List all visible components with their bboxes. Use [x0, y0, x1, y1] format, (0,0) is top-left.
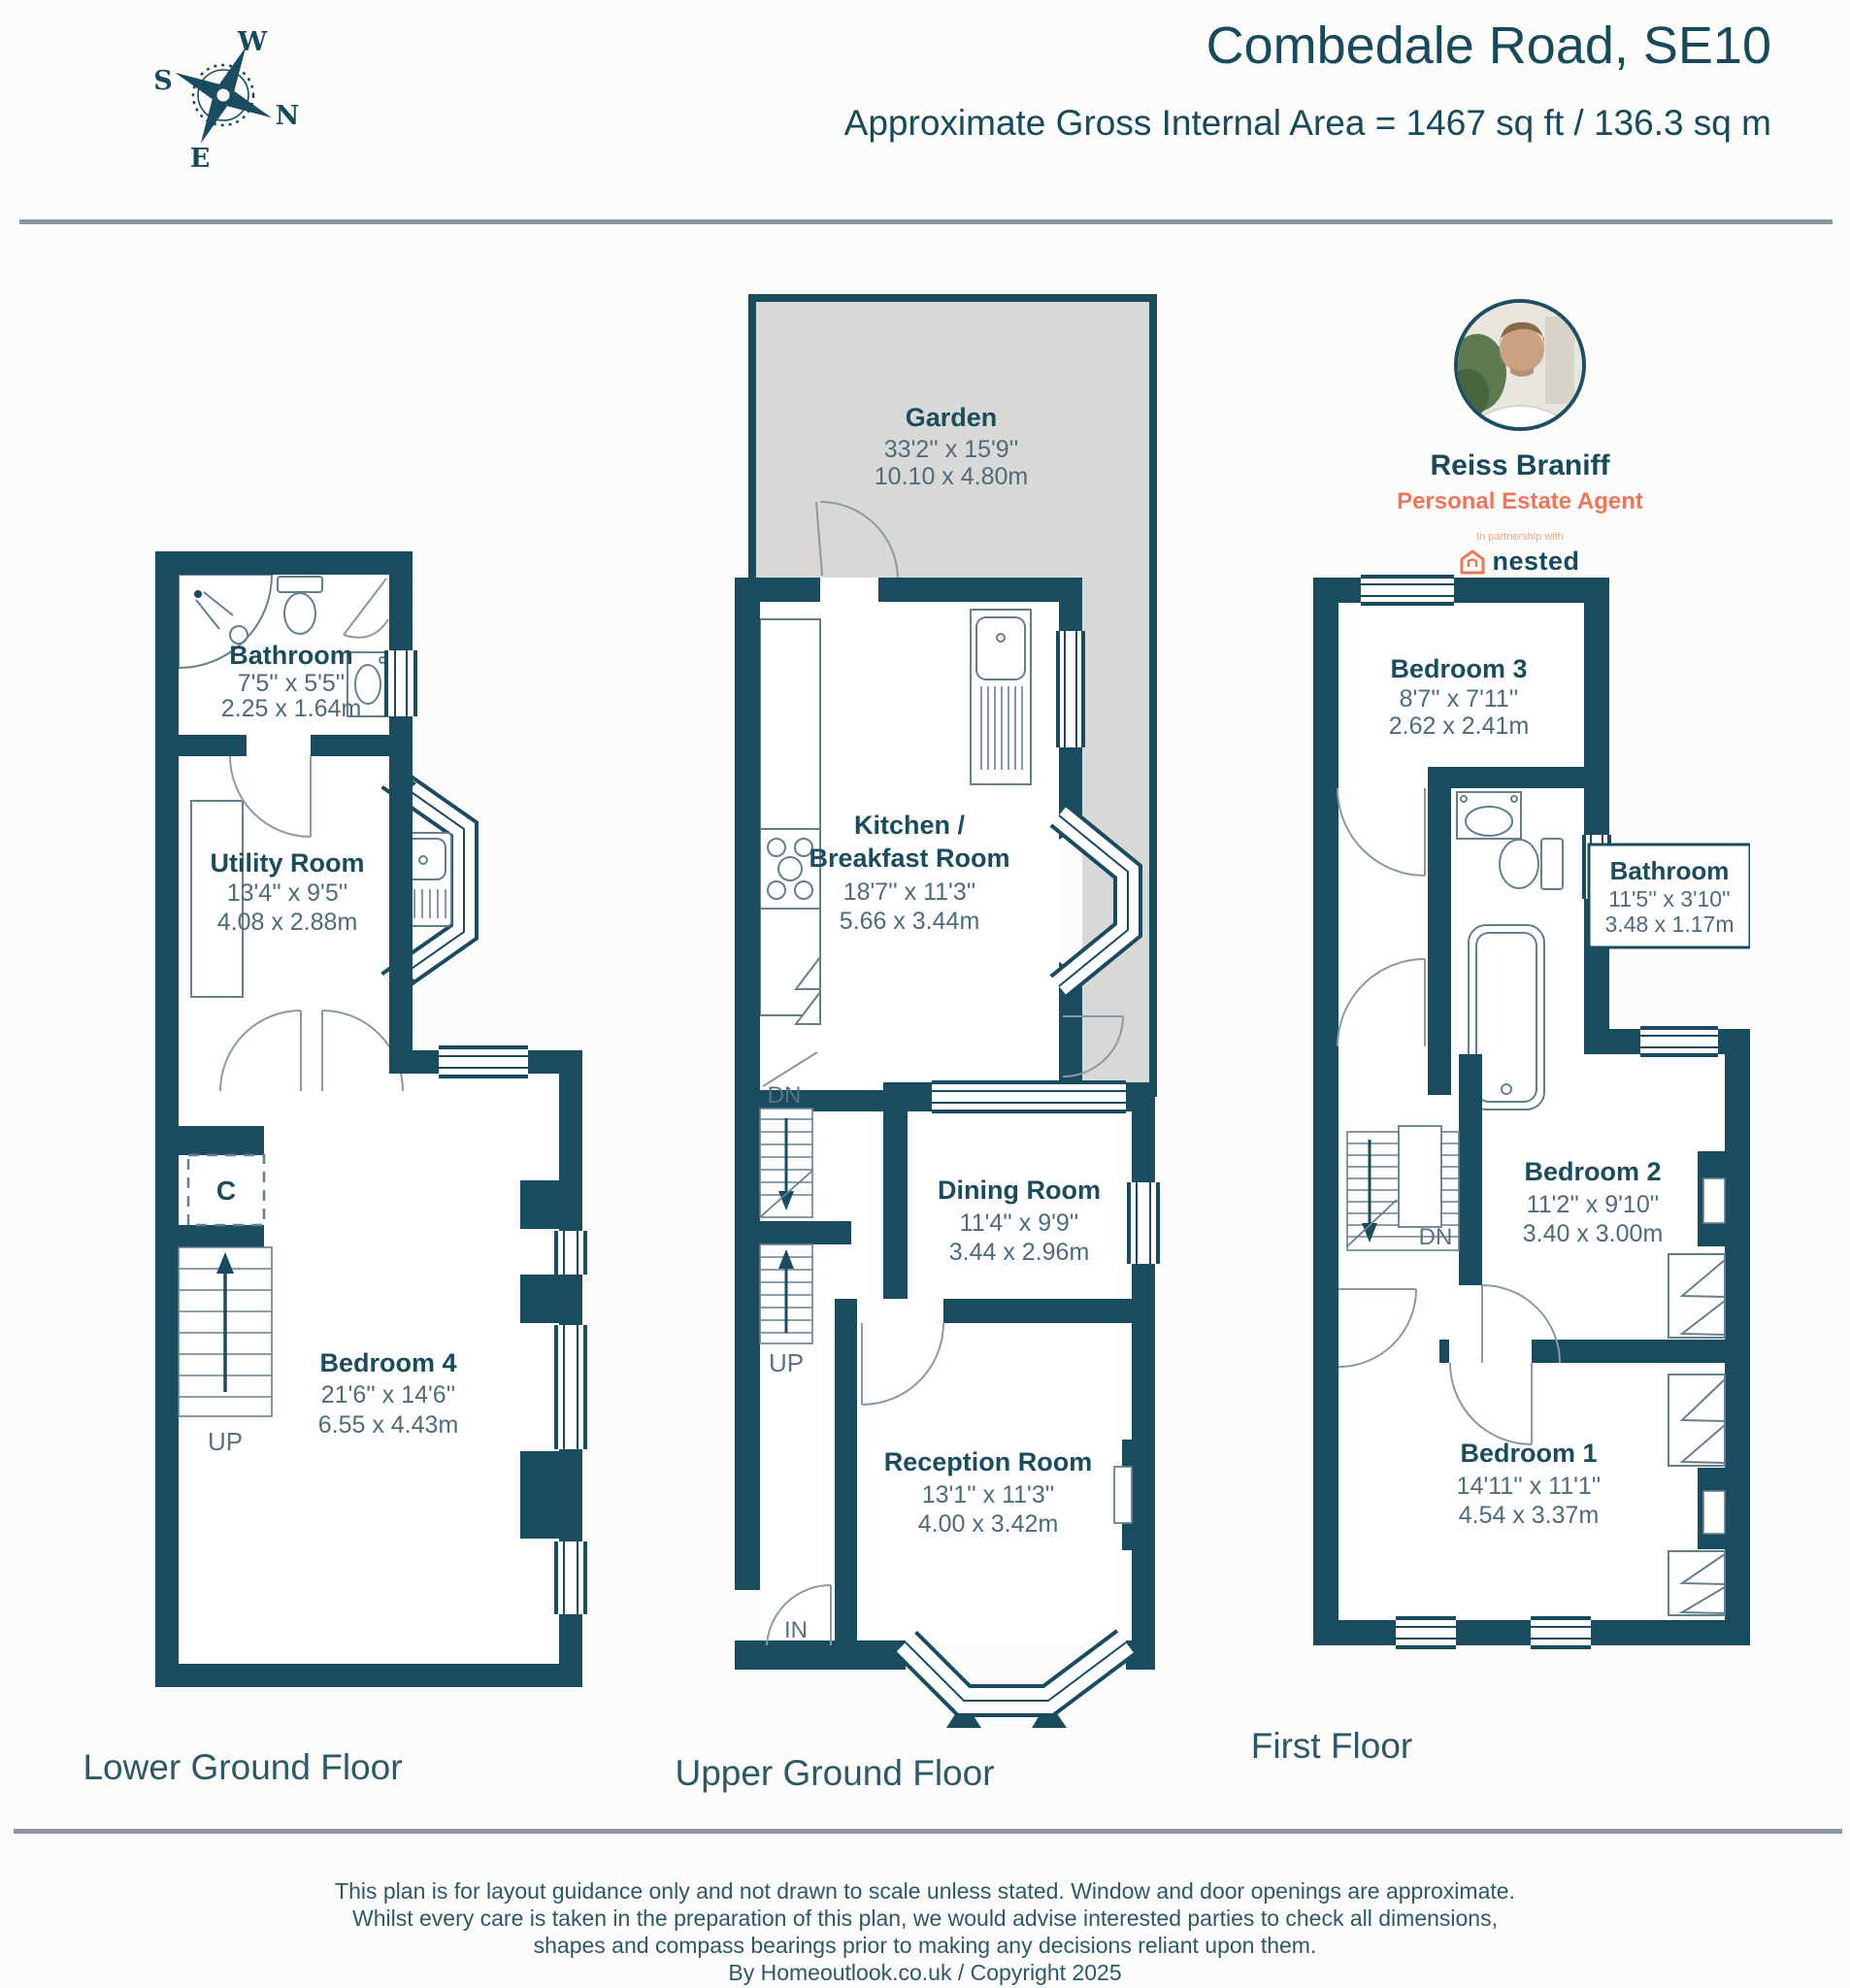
- stairs-dn-label: DN: [768, 1082, 802, 1109]
- svg-text:8'7'' x 7'11'': 8'7'' x 7'11'': [1400, 685, 1519, 712]
- kitchen-sink-icon: [971, 610, 1031, 784]
- stairs-up-label: UP: [208, 1427, 243, 1456]
- svg-text:4.00 x 3.42m: 4.00 x 3.42m: [918, 1510, 1059, 1538]
- svg-text:18'7'' x 11'3'': 18'7'' x 11'3'': [843, 878, 976, 906]
- svg-text:11'2'' x 9'10'': 11'2'' x 9'10'': [1527, 1191, 1660, 1218]
- stairs-up: [760, 1244, 812, 1343]
- svg-text:2.62 x 2.41m: 2.62 x 2.41m: [1389, 712, 1530, 740]
- disclaimer: This plan is for layout guidance only an…: [0, 1877, 1850, 1986]
- disclaimer-line: This plan is for layout guidance only an…: [0, 1877, 1850, 1905]
- reception-bay-window: [906, 1642, 1126, 1701]
- room-label-dining: Dining Room: [938, 1176, 1101, 1205]
- floor-label-upper: Upper Ground Floor: [650, 1753, 1019, 1794]
- agent-name: Reiss Braniff: [1378, 449, 1662, 482]
- svg-text:Breakfast Room: Breakfast Room: [809, 844, 1009, 873]
- svg-text:11'4'' x 9'9'': 11'4'' x 9'9'': [960, 1209, 1079, 1237]
- svg-text:10.10 x 4.80m: 10.10 x 4.80m: [875, 463, 1028, 490]
- cupboard-label: C: [216, 1176, 236, 1206]
- top-divider: [19, 219, 1833, 224]
- svg-text:13'4'' x 9'5'': 13'4'' x 9'5'': [227, 879, 348, 907]
- room-label-bathroom: Bathroom: [229, 641, 353, 670]
- floorplan-first-floor: DN Bathroom 11'5'' x 3'10'' 3.48 x 1.17m…: [1313, 551, 1750, 1687]
- floor-label-lower: Lower Ground Floor: [58, 1747, 427, 1788]
- agent-avatar: [1452, 297, 1588, 433]
- compass-s: S: [153, 66, 173, 96]
- room-label-garden: Garden: [906, 403, 998, 432]
- stairs-up-label: UP: [769, 1348, 804, 1377]
- svg-text:3.40 x 3.00m: 3.40 x 3.00m: [1523, 1220, 1664, 1247]
- stairs-down: [760, 1109, 812, 1217]
- room-label-bedroom1: Bedroom 1: [1460, 1439, 1597, 1468]
- svg-text:7'5'' x 5'5'': 7'5'' x 5'5'': [238, 670, 346, 697]
- compass-rose-icon: W N E S: [134, 16, 313, 184]
- agent-role: Personal Estate Agent: [1378, 488, 1662, 515]
- svg-text:21'6'' x 14'6'': 21'6'' x 14'6'': [321, 1381, 455, 1408]
- svg-text:3.44 x 2.96m: 3.44 x 2.96m: [949, 1239, 1090, 1266]
- svg-text:11'5'' x 3'10'': 11'5'' x 3'10'': [1608, 886, 1731, 911]
- chimney-alcove: [1703, 1491, 1725, 1534]
- svg-text:5.66 x 3.44m: 5.66 x 3.44m: [840, 908, 980, 935]
- svg-text:4.08 x 2.88m: 4.08 x 2.88m: [217, 909, 358, 936]
- svg-text:6.55 x 4.43m: 6.55 x 4.43m: [318, 1411, 459, 1439]
- svg-text:3.48 x 1.17m: 3.48 x 1.17m: [1605, 911, 1734, 937]
- stairs-dn-label: DN: [1419, 1224, 1453, 1250]
- room-label-bathroom: Bathroom: [1610, 856, 1730, 885]
- svg-text:4.54 x 3.37m: 4.54 x 3.37m: [1459, 1502, 1600, 1529]
- room-label-bedroom4: Bedroom 4: [319, 1348, 456, 1377]
- page-title: Combedale Road, SE10: [776, 16, 1771, 76]
- room-label-reception: Reception Room: [884, 1447, 1093, 1476]
- disclaimer-line: By Homeoutlook.co.uk / Copyright 2025: [0, 1959, 1850, 1986]
- agent-partnership: In partnership with: [1378, 531, 1662, 543]
- agent-badge: Reiss Braniff Personal Estate Agent In p…: [1378, 297, 1662, 577]
- entrance-label: IN: [784, 1617, 808, 1643]
- wardrobes: [1668, 1254, 1725, 1615]
- room-label-bedroom2: Bedroom 2: [1524, 1157, 1661, 1186]
- floorplan-page: Combedale Road, SE10 Approximate Gross I…: [0, 0, 1850, 1988]
- svg-text:14'11'' x 11'1'': 14'11'' x 11'1'': [1457, 1473, 1602, 1500]
- stairs-up: [179, 1247, 272, 1416]
- room-label-utility: Utility Room: [211, 848, 365, 878]
- room-label-bedroom3: Bedroom 3: [1390, 654, 1527, 683]
- fireplace-hearth: [1114, 1467, 1132, 1523]
- compass-w: W: [237, 27, 268, 57]
- compass-n: N: [276, 101, 300, 131]
- bathroom-callout: Bathroom 11'5'' x 3'10'' 3.48 x 1.17m: [1589, 845, 1750, 947]
- room-label-kitchen: Kitchen /: [854, 811, 966, 840]
- floorplan-upper-ground: DN UP IN Garden 33'2'' x 15'9'' 10.10 x …: [728, 294, 1174, 1742]
- floorplan-lower-ground: C UP Bathroom 7'5'' x 5'5'' 2.25 x 1.64m…: [155, 551, 600, 1687]
- svg-text:33'2'' x 15'9'': 33'2'' x 15'9'': [884, 436, 1018, 463]
- kitchen-counter: [760, 619, 820, 1015]
- svg-text:13'1'' x 11'3'': 13'1'' x 11'3'': [922, 1481, 1055, 1508]
- compass-e: E: [190, 144, 211, 174]
- bottom-divider: [14, 1829, 1842, 1834]
- disclaimer-line: shapes and compass bearings prior to mak…: [0, 1932, 1850, 1959]
- floor-label-first: First Floor: [1147, 1726, 1516, 1767]
- svg-text:2.25 x 1.64m: 2.25 x 1.64m: [221, 695, 362, 722]
- chimney-alcove: [1703, 1178, 1725, 1223]
- disclaimer-line: Whilst every care is taken in the prepar…: [0, 1905, 1850, 1932]
- page-subtitle: Approximate Gross Internal Area = 1467 s…: [582, 103, 1771, 144]
